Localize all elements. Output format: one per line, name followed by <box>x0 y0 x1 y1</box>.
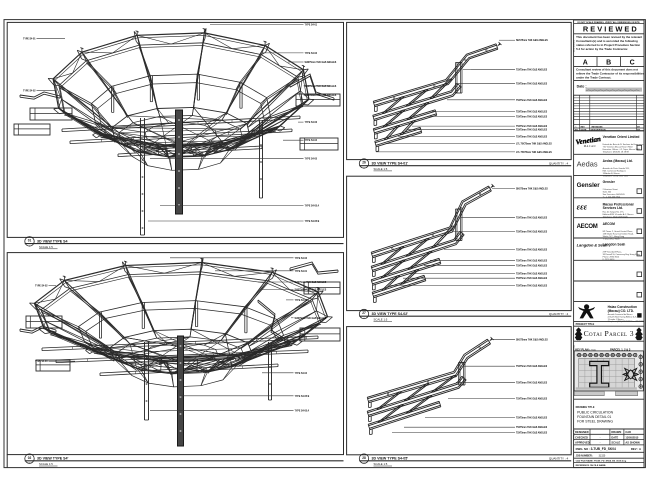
svg-text:3D VIEW TYPE S4-01': 3D VIEW TYPE S4-01' <box>372 162 409 166</box>
svg-text:QUANTITY : 4: QUANTITY : 4 <box>549 162 569 166</box>
svg-text:TYPE S4-05 A: TYPE S4-05 A <box>295 409 310 412</box>
svg-text:TYPE S4-02: TYPE S4-02 <box>295 257 308 260</box>
svg-text:R E V I E W E D: R E V I E W E D <box>583 24 637 33</box>
svg-text:FOUNTAIN DETAIL 01: FOUNTAIN DETAIL 01 <box>577 415 611 419</box>
svg-text:26: 26 <box>362 161 366 165</box>
svg-text:Langdon & Seah: Langdon & Seah <box>577 243 608 248</box>
svg-text:LTL 75X75mm THK G&S ANGLES: LTL 75X75mm THK G&S ANGLES <box>516 151 552 154</box>
svg-text:TYPE S4-03: TYPE S4-03 <box>35 360 48 363</box>
svg-text:TYPE S4-05 B: TYPE S4-05 B <box>305 220 320 223</box>
svg-text:B: B <box>606 59 611 66</box>
svg-text:under the Trade Contract.: under the Trade Contract. <box>576 75 611 79</box>
svg-text:75X75mm THK G&S ANGLES: 75X75mm THK G&S ANGLES <box>516 110 548 113</box>
svg-text:75X75mm THK G&S ANGLES: 75X75mm THK G&S ANGLES <box>516 249 548 252</box>
svg-text:27: 27 <box>362 311 366 315</box>
svg-text:TYPE S4-04: TYPE S4-04 <box>295 372 308 375</box>
svg-text:75X75mm THK G&S ANGLES: 75X75mm THK G&S ANGLES <box>516 432 548 435</box>
svg-text:75X75mm THK G&S ANGLES: 75X75mm THK G&S ANGLES <box>516 273 548 276</box>
svg-text:SHS75mm THK G&S ANGLES: SHS75mm THK G&S ANGLES <box>295 281 327 284</box>
svg-text:75X75mm THK G&S ANGLES: 75X75mm THK G&S ANGLES <box>516 426 548 429</box>
svg-text:75X75mm THK G&S ANGLES: 75X75mm THK G&S ANGLES <box>516 365 548 368</box>
svg-text:Gensler: Gensler <box>603 180 616 184</box>
svg-text:3D VIEW TYPE S4': 3D VIEW TYPE S4' <box>37 457 69 461</box>
svg-text:AECOM: AECOM <box>577 224 598 230</box>
svg-text:REV : A: REV : A <box>631 447 641 451</box>
svg-text:Telephone: (853) 2878 3326: Telephone: (853) 2878 3326 <box>603 216 629 218</box>
svg-text:Telephone: (853) 28971388 Fa: Telephone: (853) 28971388 Fax: 28971386 <box>608 321 644 323</box>
svg-text:A: A <box>583 59 588 66</box>
svg-text:-: - <box>29 461 30 464</box>
svg-text:SCALE: SCALE <box>611 441 620 445</box>
svg-text:SCALE 1:5: SCALE 1:5 <box>374 462 388 466</box>
svg-text:SHS75mm THK G&S ANGLES: SHS75mm THK G&S ANGLES <box>305 85 337 88</box>
svg-text:TYPE S4-01: TYPE S4-01 <box>305 23 318 26</box>
svg-text:75X75mm THK G&S ANGLES: 75X75mm THK G&S ANGLES <box>516 115 548 118</box>
svg-text:TYPE S4-02: TYPE S4-02 <box>35 284 48 287</box>
svg-text:TYPE S4-01: TYPE S4-01 <box>23 38 36 41</box>
svg-text:3D VIEW TYPE S4: 3D VIEW TYPE S4 <box>37 239 68 243</box>
svg-text:-: - <box>29 244 30 247</box>
svg-text:75X75mm THK G&S ANGLES: 75X75mm THK G&S ANGLES <box>516 398 548 401</box>
svg-text:SCALE 1:5: SCALE 1:5 <box>374 167 388 171</box>
svg-text:-: - <box>364 461 365 464</box>
svg-text:SHS75mm THK G&S ANGLES: SHS75mm THK G&S ANGLES <box>295 317 327 320</box>
svg-text:REFERENCE ON FILE NAME:: REFERENCE ON FILE NAME: <box>576 464 607 467</box>
svg-text:-: - <box>364 166 365 169</box>
svg-text:75X75mm THK G&S ANGLES: 75X75mm THK G&S ANGLES <box>516 417 548 420</box>
svg-text:SHS75mm THK G&S ANGLES: SHS75mm THK G&S ANGLES <box>516 338 548 341</box>
svg-text:01: 01 <box>28 239 32 243</box>
svg-text:75X75mm THK G&S ANGLES: 75X75mm THK G&S ANGLES <box>516 259 548 262</box>
svg-text:75X75mm THK G&S ANGLES: 75X75mm THK G&S ANGLES <box>516 83 548 86</box>
svg-text:M A C A O: M A C A O <box>584 145 596 148</box>
svg-text:F: 2576 0416: F: 2576 0416 <box>603 259 616 261</box>
svg-text:13/05/2015: 13/05/2015 <box>625 435 639 439</box>
svg-text:SCALE 1:5: SCALE 1:5 <box>39 462 53 466</box>
svg-text:DESIGNED: DESIGNED <box>575 430 589 434</box>
svg-text:SHS75mm THK G&S ANGLES: SHS75mm THK G&S ANGLES <box>516 39 548 42</box>
svg-text:TYPE S4-05 A: TYPE S4-05 A <box>305 205 320 208</box>
svg-text:T: (852) 3922 9000: T: (852) 3922 9000 <box>603 239 621 241</box>
svg-text:Telephone : (853) 2833 1033: Telephone : (853) 2833 1033 <box>603 175 629 177</box>
svg-text:AS SHOWN: AS SHOWN <box>625 441 639 445</box>
svg-text:31320: 31320 <box>599 455 606 458</box>
svg-text:SHS75mm THK G&S ANGLES: SHS75mm THK G&S ANGLES <box>305 61 337 64</box>
svg-text:75X75mm THK G&S ANGLES: 75X75mm THK G&S ANGLES <box>516 216 548 219</box>
svg-text:SHS75mm THK G&S ANGLES: SHS75mm THK G&S ANGLES <box>295 289 327 292</box>
svg-text:Telephone: (853) 81 18 28 88: Telephone: (853) 81 18 28 88 <box>603 152 630 154</box>
svg-text:(Macau) CO. LTD.: (Macau) CO. LTD. <box>608 309 634 313</box>
svg-text:Venetian Orient Limited: Venetian Orient Limited <box>603 135 640 139</box>
svg-text:75X75mm THK G&S ANGLES: 75X75mm THK G&S ANGLES <box>516 284 548 287</box>
svg-text:C: C <box>630 59 635 66</box>
svg-text:75X75mm THK G&S ANGLES: 75X75mm THK G&S ANGLES <box>516 264 548 267</box>
svg-text:5.4 for action by the Trade Co: 5.4 for action by the Trade Contractor. <box>576 47 628 51</box>
svg-text:75X75mm THK G&S ANGLES: 75X75mm THK G&S ANGLES <box>516 381 548 384</box>
svg-text:LTL 75X75mm THK G&S ANGLES: LTL 75X75mm THK G&S ANGLES <box>516 143 552 146</box>
svg-text:75X75mm THK G&S ANGLES: 75X75mm THK G&S ANGLES <box>516 68 548 71</box>
svg-text:TYPE S4-04: TYPE S4-04 <box>305 139 318 142</box>
svg-text:PROJECT TITLE: PROJECT TITLE <box>576 323 595 326</box>
svg-text:SCALE 1:5: SCALE 1:5 <box>374 318 388 322</box>
svg-text:CAD: CAD <box>625 430 631 434</box>
svg-text:DRAWN: DRAWN <box>611 430 621 434</box>
svg-text:-: - <box>600 436 601 439</box>
svg-text:-: - <box>364 316 365 319</box>
svg-text:TYPE S4-02: TYPE S4-02 <box>295 299 308 302</box>
svg-text:28: 28 <box>362 456 366 460</box>
svg-text:75X75mm THK G&S ANGLES: 75X75mm THK G&S ANGLES <box>516 135 548 138</box>
svg-text:DRAWING TITLE: DRAWING TITLE <box>576 406 595 409</box>
svg-text:TYPE S4-03: TYPE S4-03 <box>305 121 318 124</box>
svg-text:Gensler: Gensler <box>577 182 601 189</box>
svg-text:Aedas: Aedas <box>577 159 598 168</box>
svg-text:75X75mm THK G&S ANGLES: 75X75mm THK G&S ANGLES <box>516 231 548 234</box>
svg-text:DATE: DATE <box>611 435 618 439</box>
svg-text:CAD FILE NAME: FOUN_FD_SK04_B5: CAD FILE NAME: FOUN_FD_SK04_B5_0519.dwg <box>576 459 627 462</box>
svg-text:3D VIEW TYPE S4-05': 3D VIEW TYPE S4-05' <box>372 457 409 461</box>
svg-text:SHS75mm THK G&S ANGLES: SHS75mm THK G&S ANGLES <box>305 94 337 97</box>
svg-text:SHS75mm THK G&S ANGLES: SHS75mm THK G&S ANGLES <box>516 188 548 191</box>
svg-text:TYPE S4-05: TYPE S4-05 <box>305 157 318 160</box>
svg-text:AECOM: AECOM <box>603 222 616 226</box>
svg-text:Aedas (Macau) Ltd.: Aedas (Macau) Ltd. <box>603 159 633 163</box>
svg-text:TYPE S4-02: TYPE S4-02 <box>23 89 36 92</box>
svg-text:75X75mm THK G&S ANGLES: 75X75mm THK G&S ANGLES <box>516 129 548 132</box>
svg-text:SCALE 1:5: SCALE 1:5 <box>39 245 53 249</box>
svg-text:75X75mm THK G&S ANGLES: 75X75mm THK G&S ANGLES <box>516 277 548 280</box>
svg-text:TYPE S4-02: TYPE S4-02 <box>305 52 318 55</box>
svg-text:Cotai Parcel 3: Cotai Parcel 3 <box>584 329 634 338</box>
svg-text:3-TUB_FD_SK04: 3-TUB_FD_SK04 <box>591 447 616 451</box>
svg-text:CHECKED: CHECKED <box>575 435 588 439</box>
svg-text:T + 1 415 433 3700: T + 1 415 433 3700 <box>603 196 621 198</box>
svg-text:TYPE S4-05 B: TYPE S4-05 B <box>295 395 310 398</box>
svg-text:FOR STEEL DRAWING: FOR STEEL DRAWING <box>577 420 613 424</box>
svg-text:-: - <box>600 442 601 445</box>
svg-text:JOB NUMBER :: JOB NUMBER : <box>576 455 594 458</box>
svg-text:APPROVED: APPROVED <box>575 441 590 445</box>
svg-text:PUBLIC CIRCULATION: PUBLIC CIRCULATION <box>577 411 613 415</box>
svg-text:TYPE S4-01: TYPE S4-01 <box>295 270 308 273</box>
svg-text:Services Ltd.: Services Ltd. <box>603 206 624 210</box>
svg-text:02: 02 <box>28 456 32 460</box>
svg-text:75X75mm THK G&S ANGLES: 75X75mm THK G&S ANGLES <box>516 99 548 102</box>
svg-text:75X75mm THK G&S ANGLES: 75X75mm THK G&S ANGLES <box>516 125 548 128</box>
svg-text:QUANTITY : 4: QUANTITY : 4 <box>549 312 569 316</box>
svg-text:εεε: εεε <box>577 201 588 211</box>
svg-text:QUANTITY : 4: QUANTITY : 4 <box>549 457 569 461</box>
svg-text:TYPE S4-03: TYPE S4-03 <box>295 336 308 339</box>
svg-text:DWG. NO :: DWG. NO : <box>576 447 590 451</box>
svg-text:Date :: Date : <box>577 85 587 89</box>
svg-text:3D VIEW TYPE S4-02': 3D VIEW TYPE S4-02' <box>372 312 409 316</box>
